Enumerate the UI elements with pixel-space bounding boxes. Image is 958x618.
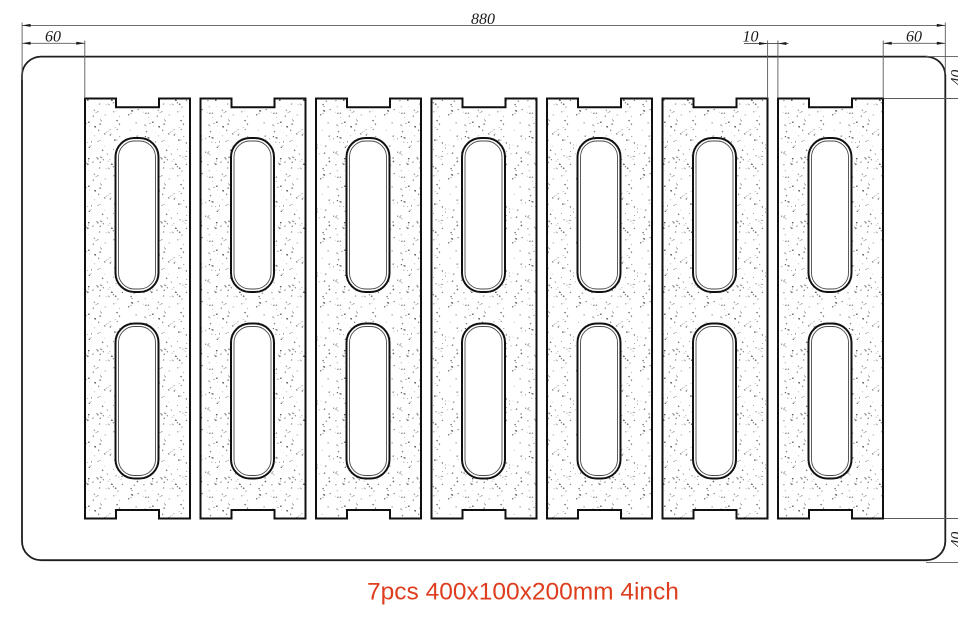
svg-text:7pcs 400x100x200mm 4inch: 7pcs 400x100x200mm 4inch	[367, 579, 679, 606]
svg-text:880: 880	[471, 11, 495, 28]
svg-text:60: 60	[906, 29, 922, 46]
svg-text:40: 40	[949, 532, 958, 548]
svg-text:40: 40	[949, 70, 958, 86]
svg-text:60: 60	[45, 29, 61, 46]
svg-text:10: 10	[743, 29, 759, 46]
